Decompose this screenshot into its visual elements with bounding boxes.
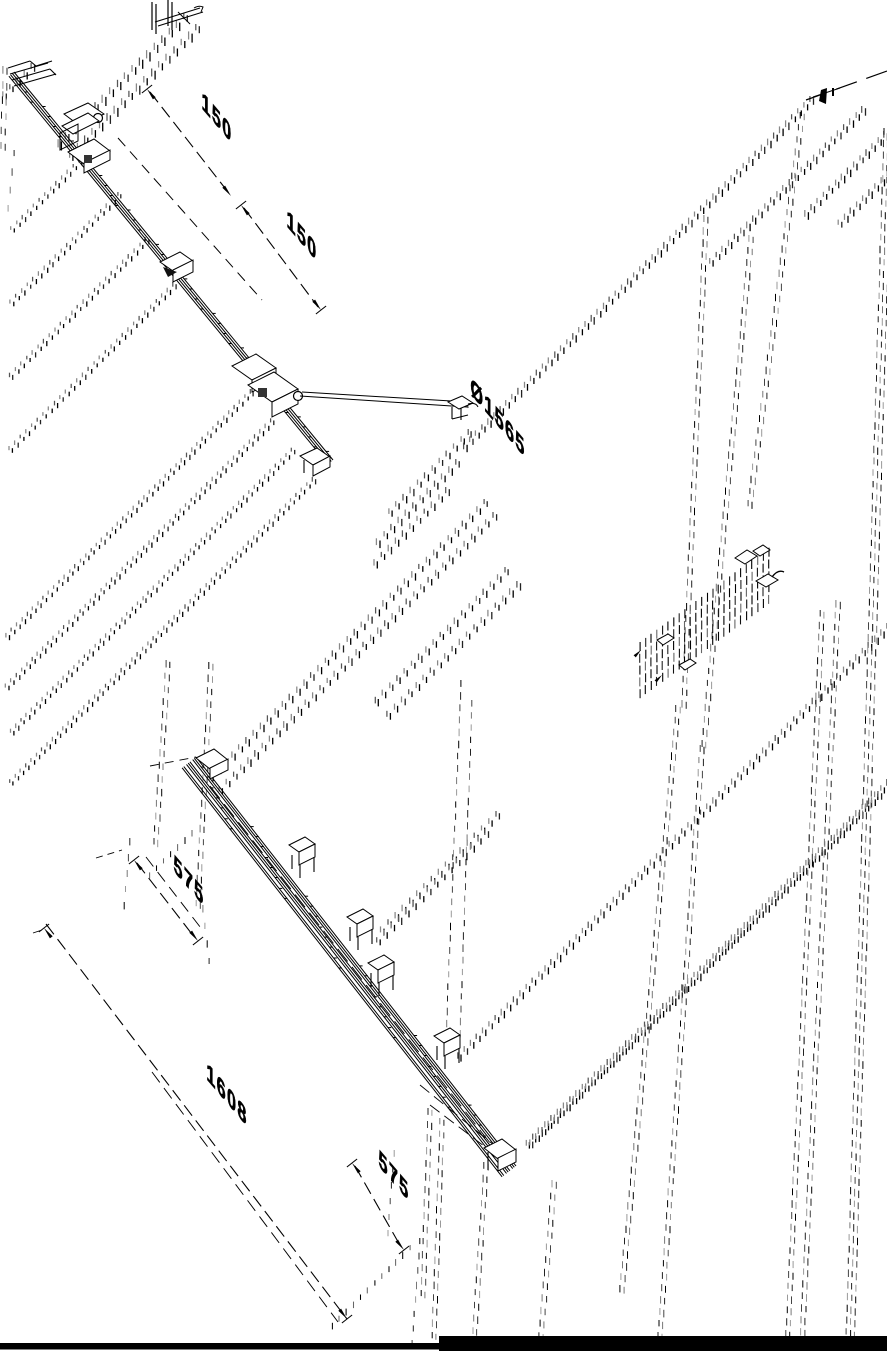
svg-text:150: 150 (286, 204, 317, 268)
svg-text:150: 150 (201, 86, 232, 150)
svg-text:1608: 1608 (206, 1057, 247, 1133)
svg-text:575: 575 (173, 849, 204, 913)
svg-text:Ø1565: Ø1565 (470, 372, 525, 465)
